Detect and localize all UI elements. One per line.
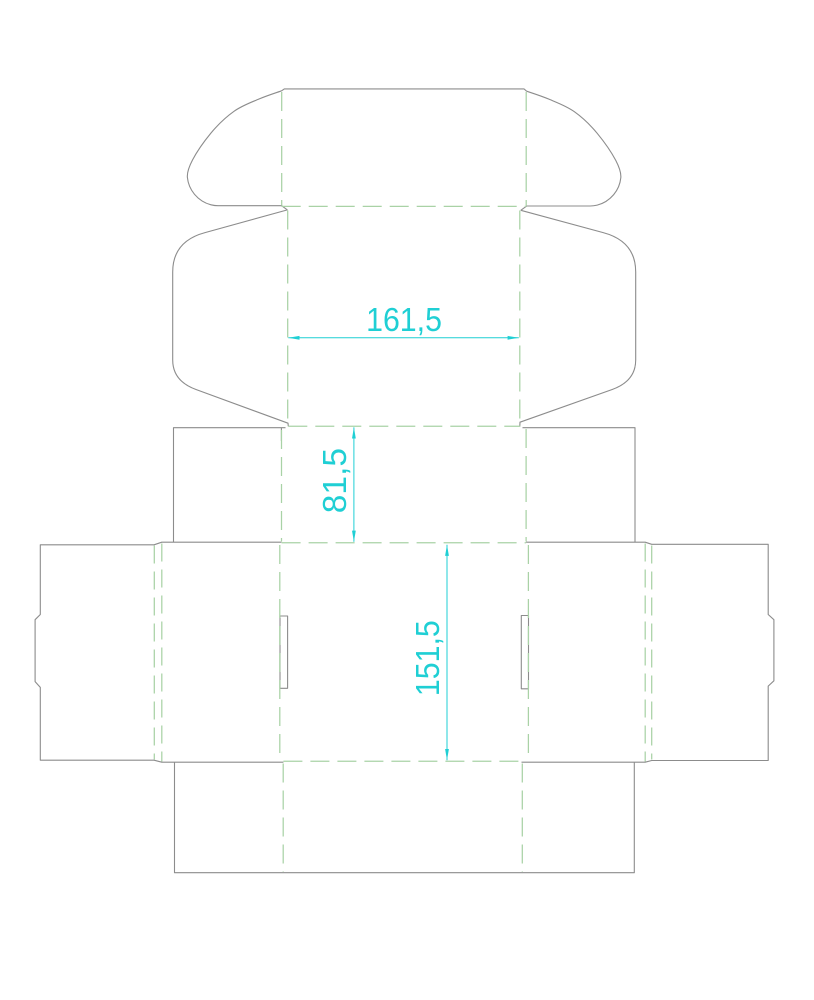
svg-text:151,5: 151,5: [409, 620, 447, 696]
svg-text:81,5: 81,5: [317, 448, 354, 513]
svg-text:161,5: 161,5: [366, 301, 442, 339]
